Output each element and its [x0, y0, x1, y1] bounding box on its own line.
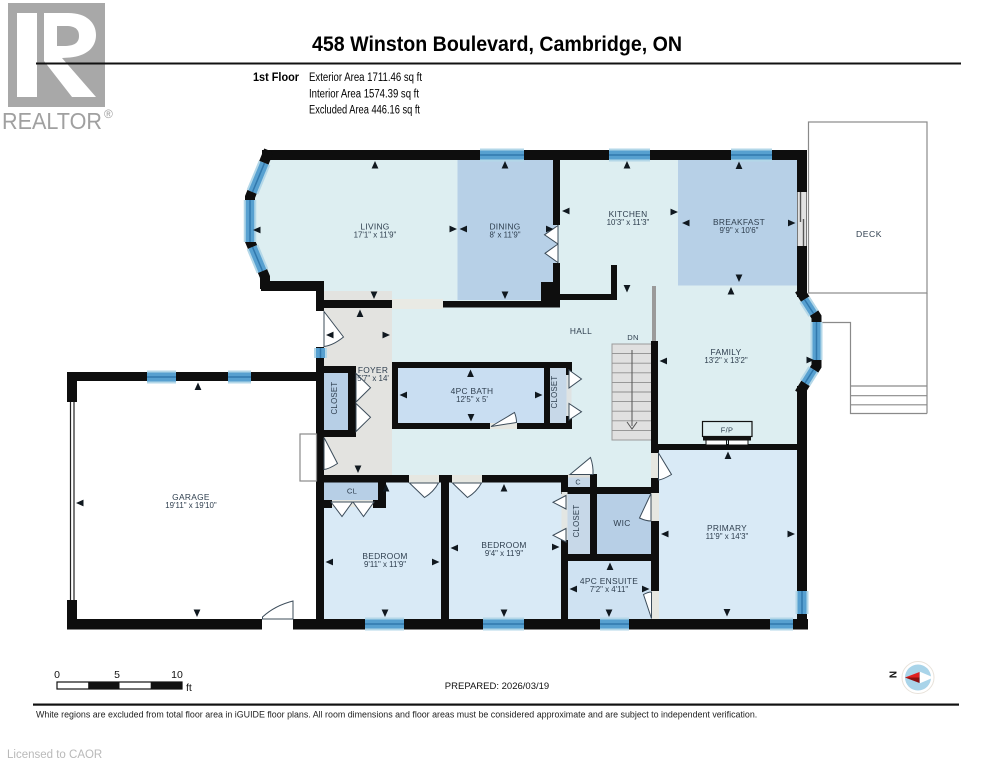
- svg-text:9'11" x 11'9": 9'11" x 11'9": [364, 560, 406, 569]
- svg-text:13'2" x 13'2": 13'2" x 13'2": [704, 356, 747, 365]
- svg-text:9'4" x 11'9": 9'4" x 11'9": [485, 549, 523, 558]
- svg-text:ft: ft: [186, 682, 192, 694]
- svg-text:1st Floor: 1st Floor: [253, 72, 299, 84]
- svg-text:DN: DN: [627, 333, 639, 342]
- svg-text:5'7" x 14': 5'7" x 14': [357, 374, 389, 383]
- svg-text:19'11" x 19'10": 19'11" x 19'10": [165, 501, 217, 510]
- svg-text:Excluded Area 446.16 sq ft: Excluded Area 446.16 sq ft: [309, 105, 421, 117]
- svg-text:CL: CL: [347, 487, 357, 496]
- svg-text:Interior Area 1574.39 sq ft: Interior Area 1574.39 sq ft: [309, 89, 420, 101]
- svg-text:Exterior Area 1711.46 sq ft: Exterior Area 1711.46 sq ft: [309, 72, 423, 84]
- svg-text:CLOSET: CLOSET: [330, 382, 339, 415]
- svg-text:F/P: F/P: [721, 426, 733, 435]
- svg-text:C: C: [575, 478, 580, 487]
- svg-text:11'9" x 14'3": 11'9" x 14'3": [706, 532, 749, 541]
- svg-text:0: 0: [54, 669, 60, 681]
- svg-text:DECK: DECK: [856, 229, 882, 239]
- svg-text:9'9" x 10'6": 9'9" x 10'6": [720, 226, 759, 235]
- svg-text:WIC: WIC: [613, 518, 630, 528]
- svg-text:10'3" x 11'3": 10'3" x 11'3": [607, 218, 650, 227]
- svg-text:458 Winston Boulevard, Cambrid: 458 Winston Boulevard, Cambridge, ON: [312, 33, 682, 56]
- svg-text:Licensed to CAOR: Licensed to CAOR: [7, 749, 102, 761]
- svg-text:12'5" x 5': 12'5" x 5': [456, 395, 488, 404]
- svg-text:REALTOR: REALTOR: [2, 108, 102, 134]
- svg-text:8' x 11'9": 8' x 11'9": [489, 230, 520, 239]
- svg-text:White regions are excluded fro: White regions are excluded from total fl…: [36, 710, 757, 720]
- svg-text:CLOSET: CLOSET: [572, 505, 581, 538]
- svg-text:HALL: HALL: [570, 326, 592, 336]
- svg-text:PREPARED: 2026/03/19: PREPARED: 2026/03/19: [445, 681, 549, 692]
- svg-text:7'2" x 4'11": 7'2" x 4'11": [590, 585, 628, 594]
- svg-text:17'1" x 11'9": 17'1" x 11'9": [354, 230, 397, 239]
- svg-text:N: N: [889, 671, 900, 678]
- svg-text:10: 10: [171, 669, 183, 681]
- svg-text:CLOSET: CLOSET: [550, 376, 559, 409]
- svg-text:5: 5: [114, 669, 120, 681]
- svg-text:®: ®: [104, 107, 113, 121]
